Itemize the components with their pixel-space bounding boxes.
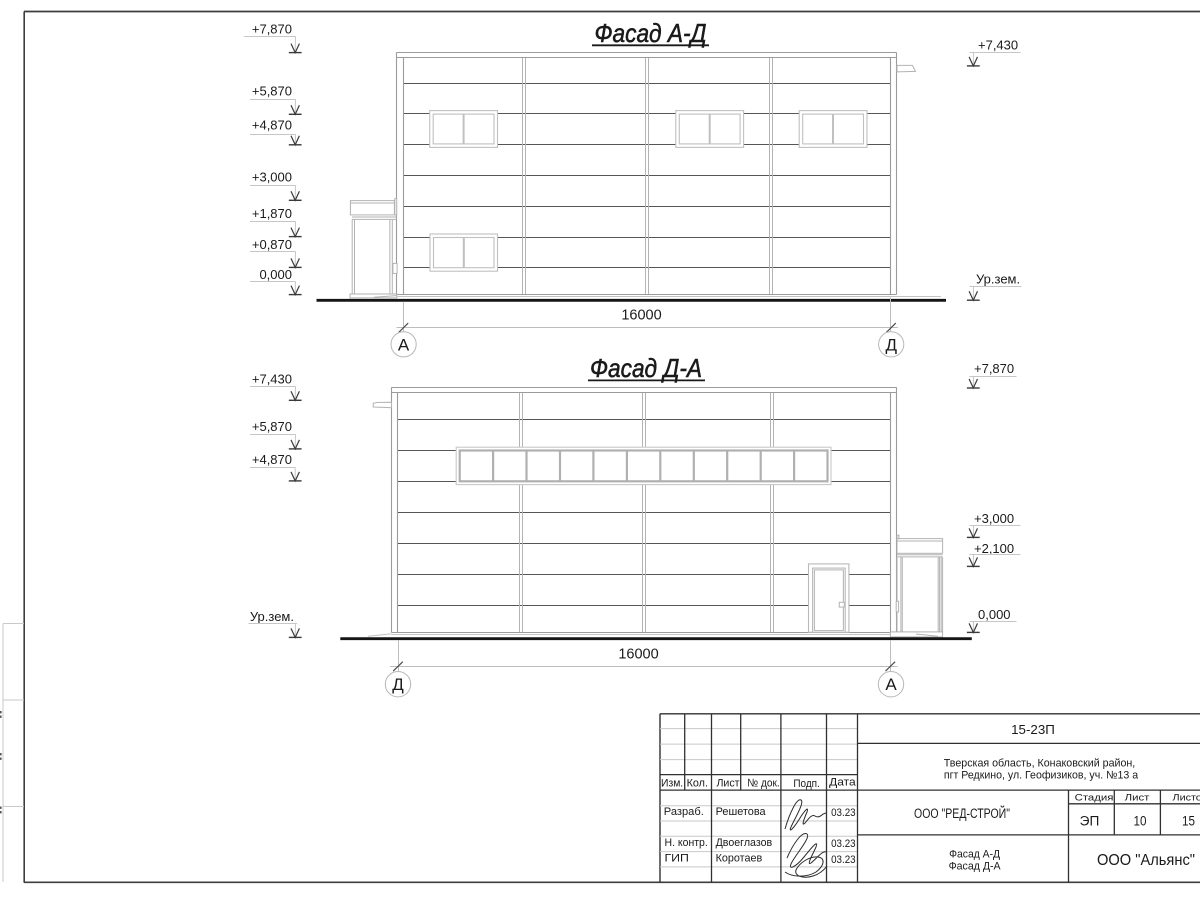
svg-text:Фасад А-Д: Фасад А-Д xyxy=(949,849,1001,861)
svg-text:А: А xyxy=(398,335,410,354)
svg-text:Стадия: Стадия xyxy=(1075,792,1114,803)
svg-text:16000: 16000 xyxy=(618,647,658,663)
svg-text:03.23: 03.23 xyxy=(831,838,856,850)
svg-text:10: 10 xyxy=(1134,814,1147,829)
svg-text:+7,430: +7,430 xyxy=(978,38,1018,53)
svg-text:+5,870: +5,870 xyxy=(252,84,292,99)
svg-text:Н. контр.: Н. контр. xyxy=(665,837,708,849)
svg-text:ООО "РЕД-СТРОЙ": ООО "РЕД-СТРОЙ" xyxy=(914,806,1010,821)
svg-text:+4,870: +4,870 xyxy=(252,118,292,133)
svg-text:Решетова: Решетова xyxy=(716,806,767,818)
svg-text:пгт Редкино, ул. Геофизиков, у: пгт Редкино, ул. Геофизиков, уч. №13 а xyxy=(944,769,1139,781)
svg-text:15-23П: 15-23П xyxy=(1011,722,1055,737)
svg-text:03.23: 03.23 xyxy=(831,807,856,819)
svg-text:Тверская область, Конаковский: Тверская область, Конаковский район, xyxy=(944,757,1136,769)
svg-text:15: 15 xyxy=(1182,814,1195,829)
svg-text:0,000: 0,000 xyxy=(259,267,292,282)
svg-text:Ур.зем.: Ур.зем. xyxy=(976,272,1020,287)
svg-text:+0,870: +0,870 xyxy=(252,237,292,252)
svg-text:Коротаев: Коротаев xyxy=(716,853,763,865)
svg-text:0,000: 0,000 xyxy=(978,607,1011,622)
svg-text:03.23: 03.23 xyxy=(831,854,856,866)
svg-text:Фасад Д-А: Фасад Д-А xyxy=(949,861,1002,873)
svg-text:Листов: Листов xyxy=(1173,792,1200,803)
svg-text:Лист: Лист xyxy=(716,777,739,789)
svg-text:Разраб.: Разраб. xyxy=(664,806,704,818)
svg-text:Кол.: Кол. xyxy=(687,777,708,789)
svg-text:Дата: Дата xyxy=(829,776,856,788)
svg-text:Фасад А-Д: Фасад А-Д xyxy=(595,18,707,48)
svg-text:+1,870: +1,870 xyxy=(252,206,292,221)
svg-text:Д: Д xyxy=(885,335,897,354)
svg-text:Двоеглазов: Двоеглазов xyxy=(716,837,773,849)
svg-text:ГИП: ГИП xyxy=(665,853,689,865)
svg-text:Изм.: Изм. xyxy=(661,777,683,789)
svg-text:+7,870: +7,870 xyxy=(974,361,1014,376)
svg-text:+3,000: +3,000 xyxy=(974,511,1014,526)
svg-text:+4,870: +4,870 xyxy=(252,452,292,467)
svg-text:16000: 16000 xyxy=(621,308,661,324)
svg-text:Фасад Д-А: Фасад Д-А xyxy=(590,353,702,383)
svg-text:ЭП: ЭП xyxy=(1080,814,1100,829)
svg-text:№ док.: № док. xyxy=(747,777,780,789)
svg-text:Лист: Лист xyxy=(1125,792,1151,803)
svg-text:Д: Д xyxy=(392,675,404,694)
svg-text:+5,870: +5,870 xyxy=(252,419,292,434)
svg-text:+3,000: +3,000 xyxy=(252,170,292,185)
svg-text:+2,100: +2,100 xyxy=(974,541,1014,556)
svg-text:Подп.: Подп. xyxy=(793,778,820,790)
svg-text:+7,430: +7,430 xyxy=(252,371,292,386)
svg-text:Ур.зем.: Ур.зем. xyxy=(250,609,294,624)
svg-text:ООО "Альянс": ООО "Альянс" xyxy=(1097,852,1195,869)
svg-text:А: А xyxy=(885,675,897,694)
svg-text:+7,870: +7,870 xyxy=(252,22,292,37)
